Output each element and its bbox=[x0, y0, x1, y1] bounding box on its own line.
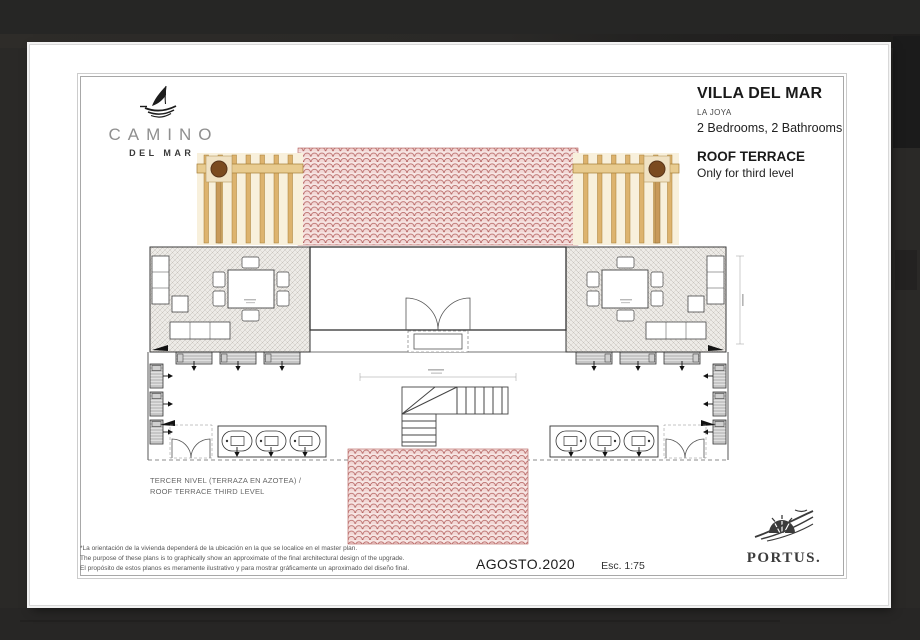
brand-name: CAMINO bbox=[82, 125, 238, 145]
disclaimer-text: *La orientación de la vivienda dependerá… bbox=[80, 544, 409, 574]
portus-wordmark: PORTUS. bbox=[724, 550, 844, 567]
roof-tiles-bottom bbox=[348, 449, 528, 544]
plan-document-page: CAMINO DEL MAR VILLA DEL MAR LA JOYA 2 B… bbox=[30, 45, 888, 605]
plan-caption: TERCER NIVEL (TERRAZA EN AZOTEA) / ROOF … bbox=[150, 476, 301, 497]
floor-plan-drawing bbox=[130, 145, 770, 560]
disclaimer-line3: El propósito de estos planos es merament… bbox=[80, 564, 409, 574]
viewer-backdrop-bottom-line bbox=[20, 620, 780, 622]
viewer-backdrop-right-artifact bbox=[895, 250, 917, 290]
sailboat-icon bbox=[137, 85, 183, 119]
center-room bbox=[310, 247, 566, 352]
viewer-backdrop-bottom bbox=[0, 608, 920, 640]
roof-tiles-top bbox=[298, 148, 578, 245]
plan-caption-line2: ROOF TERRACE THIRD LEVEL bbox=[150, 487, 301, 498]
villa-subtitle: LA JOYA bbox=[697, 108, 867, 117]
staircase bbox=[402, 387, 508, 446]
portus-logo: PORTUS. bbox=[724, 507, 844, 567]
viewer-backdrop-top bbox=[0, 0, 920, 34]
disclaimer-line1: *La orientación de la vivienda dependerá… bbox=[80, 544, 409, 554]
footer-row: AGOSTO.2020 Esc. 1:75 bbox=[476, 556, 645, 572]
plan-scale: Esc. 1:75 bbox=[601, 560, 645, 572]
viewer-backdrop-right-block bbox=[893, 36, 920, 148]
portus-ship-icon bbox=[753, 507, 815, 547]
villa-specs: 2 Bedrooms, 2 Bathrooms bbox=[697, 121, 867, 135]
villa-title: VILLA DEL MAR bbox=[697, 85, 867, 103]
plan-date: AGOSTO.2020 bbox=[476, 556, 575, 572]
disclaimer-line2: The purpose of these plans is to graphic… bbox=[80, 554, 409, 564]
plan-caption-line1: TERCER NIVEL (TERRAZA EN AZOTEA) / bbox=[150, 476, 301, 487]
